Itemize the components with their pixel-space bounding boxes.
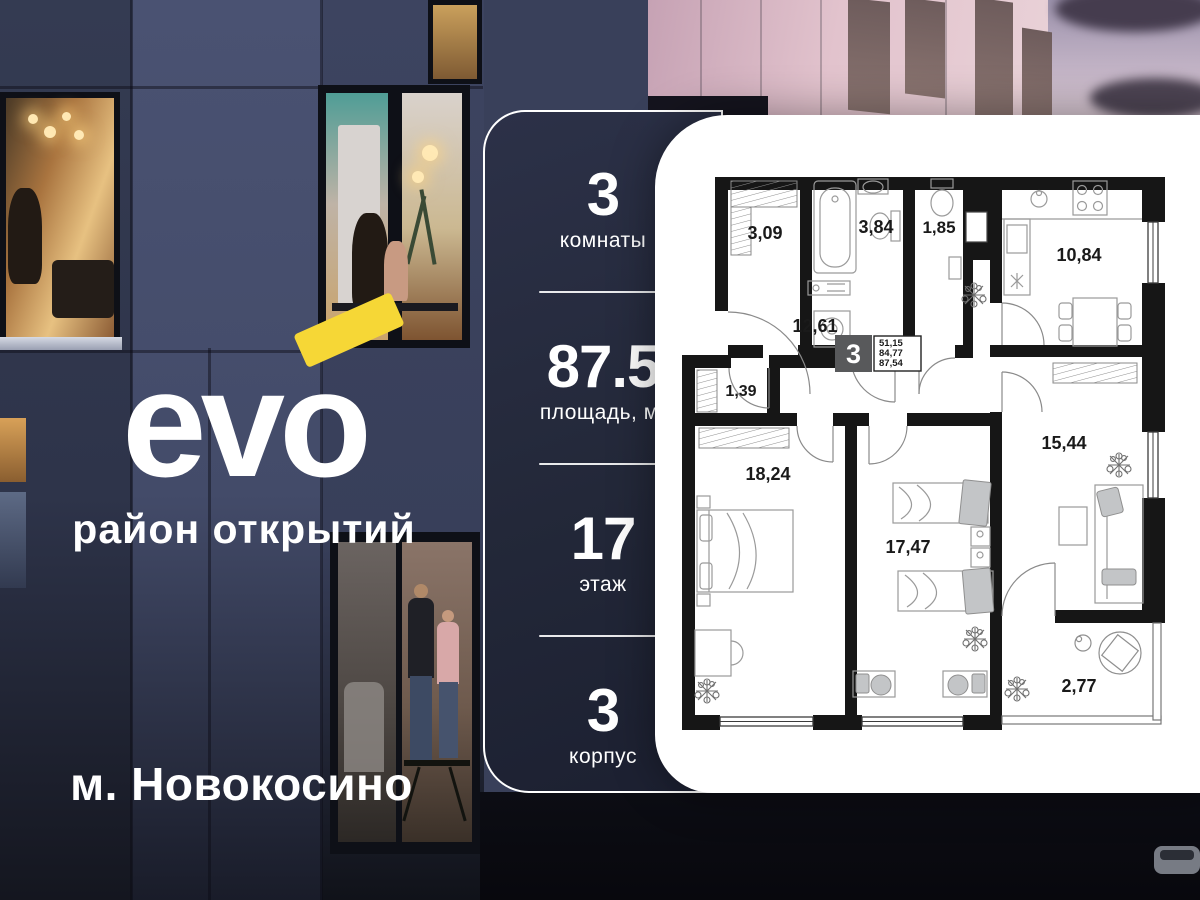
man-silhouette bbox=[408, 598, 434, 678]
man-head bbox=[414, 584, 428, 598]
nightstand bbox=[697, 496, 710, 508]
car-windows bbox=[1160, 850, 1194, 860]
logo-text: evo bbox=[58, 348, 430, 500]
pillow bbox=[700, 515, 712, 541]
wc-sink bbox=[949, 257, 961, 279]
woman-jeans bbox=[439, 682, 458, 758]
area-total: 87,54 bbox=[879, 358, 903, 369]
real-estate-banner: evo район открытий м. Новокосино 3 комна… bbox=[0, 0, 1200, 900]
coffee-table bbox=[1059, 507, 1087, 545]
facade-window-panel bbox=[975, 0, 1013, 121]
chair bbox=[1059, 303, 1072, 319]
window-living-left bbox=[0, 92, 120, 348]
nightstand bbox=[697, 594, 710, 606]
label-bathroom: 3,84 bbox=[858, 217, 893, 237]
stat-area-value: 87.5 bbox=[540, 337, 666, 397]
plant bbox=[695, 679, 719, 703]
label-kids-room: 17,47 bbox=[885, 537, 930, 557]
chair bbox=[1118, 325, 1131, 341]
desk-chair bbox=[948, 675, 968, 695]
shoe-bench bbox=[808, 281, 850, 295]
facade-window-panel bbox=[905, 0, 945, 98]
stat-floor-value: 17 bbox=[571, 509, 636, 569]
divider bbox=[539, 463, 667, 465]
stat-rooms-label: комнаты bbox=[560, 230, 647, 251]
label-wardrobe: 3,09 bbox=[747, 223, 782, 243]
chair bbox=[731, 641, 743, 665]
label-bedroom: 18,24 bbox=[745, 464, 790, 484]
stat-floor: 17 этаж bbox=[571, 509, 636, 595]
sofa-pillow bbox=[1096, 487, 1124, 518]
laptop bbox=[856, 674, 869, 693]
kitchen-sink bbox=[1031, 191, 1047, 207]
shaft bbox=[966, 212, 987, 242]
metro-station: м. Новокосино bbox=[0, 757, 483, 811]
dining-table bbox=[1073, 298, 1117, 346]
laptop bbox=[972, 674, 985, 693]
facade-window-panel bbox=[1022, 28, 1052, 121]
label-living-room: 15,44 bbox=[1041, 433, 1086, 453]
stat-rooms: 3 комнаты bbox=[560, 165, 647, 251]
window-sliver bbox=[428, 0, 482, 84]
label-balcony: 2,77 bbox=[1061, 676, 1096, 696]
label-wc: 1,85 bbox=[922, 218, 955, 237]
stat-area: 87.5 площадь, м² bbox=[540, 337, 666, 423]
label-kitchen: 10,84 bbox=[1056, 245, 1101, 265]
stat-area-label: площадь, м² bbox=[540, 402, 666, 423]
dresser bbox=[695, 630, 731, 676]
divider bbox=[539, 291, 667, 293]
facade-window-panel bbox=[848, 0, 890, 114]
person-silhouette bbox=[8, 188, 42, 284]
plant bbox=[962, 283, 986, 307]
woman-head bbox=[442, 610, 454, 622]
logo-tagline: район открытий bbox=[58, 506, 430, 553]
sofa-silhouette bbox=[52, 260, 114, 318]
balcony-furniture bbox=[1075, 632, 1141, 674]
window-sliver bbox=[0, 492, 26, 588]
label-closet: 1,39 bbox=[725, 383, 756, 400]
floorplan-drawing: 3,09 3,84 1,85 10,84 12,61 1,39 18,24 17… bbox=[655, 115, 1200, 793]
divider bbox=[539, 635, 667, 637]
rooms-badge-value: 3 bbox=[846, 339, 861, 369]
flat-summary: 3 51,15 84,77 87,54 bbox=[835, 335, 921, 372]
plant bbox=[1005, 677, 1029, 701]
chair bbox=[1118, 303, 1131, 319]
blanket bbox=[962, 568, 994, 614]
stat-floor-label: этаж bbox=[571, 574, 636, 595]
window-sliver bbox=[0, 418, 26, 482]
label-hallway: 12,61 bbox=[792, 316, 837, 336]
woman-silhouette bbox=[437, 622, 459, 684]
stat-building-label: корпус bbox=[569, 746, 637, 767]
stat-building: 3 корпус bbox=[569, 681, 637, 767]
hanging-chair bbox=[1099, 632, 1141, 674]
pillow bbox=[700, 563, 712, 589]
plant bbox=[963, 627, 987, 651]
toilet bbox=[931, 190, 953, 216]
floorplan-card: 3,09 3,84 1,85 10,84 12,61 1,39 18,24 17… bbox=[655, 115, 1200, 793]
stat-building-value: 3 bbox=[569, 681, 637, 741]
man-jeans bbox=[410, 676, 432, 760]
desk-chair bbox=[871, 675, 891, 695]
stat-rooms-value: 3 bbox=[560, 165, 647, 225]
sofa-pillow bbox=[1102, 569, 1136, 585]
chair bbox=[1059, 325, 1072, 341]
plant bbox=[1107, 453, 1131, 477]
street-night bbox=[480, 792, 1200, 900]
blanket bbox=[959, 480, 991, 527]
logo: evo район открытий bbox=[58, 348, 430, 553]
